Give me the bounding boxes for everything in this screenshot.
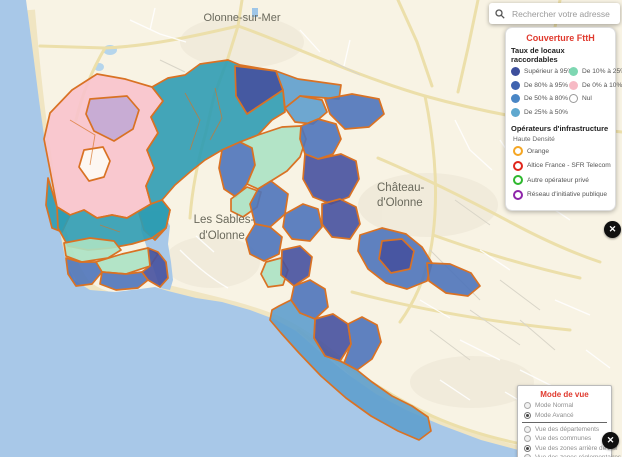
- label-sables-line1: Les Sables-: [194, 214, 255, 226]
- coverage-legend-label: De 0% à 10%: [582, 82, 622, 89]
- operator-legend-label: Réseau d'initiative publique: [527, 191, 607, 198]
- label-chateau-line1: Château-: [377, 182, 424, 194]
- coverage-legend-item: Supérieur à 95%: [511, 67, 569, 76]
- operator-ring-icon: [513, 161, 523, 171]
- radio-button-icon[interactable]: [524, 402, 531, 409]
- coverage-legend-col2: De 10% à 25% De 0% à 10% Nul: [569, 67, 622, 121]
- radio-button-icon[interactable]: [524, 445, 531, 452]
- coverage-legend: Supérieur à 95% De 80% à 95% De 50% à 80…: [511, 67, 610, 121]
- view-mode-panel: Mode de vue Mode Normal Mode Avancé Vue …: [517, 385, 612, 457]
- view-mode-options: Mode Normal Mode Avancé Vue des départem…: [522, 402, 607, 457]
- view-mode-option-label: Vue des départements: [535, 426, 599, 433]
- operator-legend-label: Altice France - SFR Telecom: [527, 162, 611, 169]
- label-chateau-line2: d'Olonne: [377, 197, 423, 209]
- operator-ring-icon: [513, 190, 523, 200]
- coverage-legend-label: De 80% à 95%: [524, 82, 568, 89]
- operators-section-title: Opérateurs d'infrastructure: [511, 124, 610, 133]
- operator-legend-item: Altice France - SFR Telecom: [513, 161, 610, 171]
- coverage-color-dot: [511, 81, 520, 90]
- operator-legend-item: Réseau d'initiative publique: [513, 190, 610, 200]
- legend-panel: Couverture FttH Taux de locaux raccordab…: [505, 27, 616, 211]
- coverage-color-dot: [569, 67, 578, 76]
- radio-button-icon[interactable]: [524, 435, 531, 442]
- radio-button-icon[interactable]: [524, 412, 531, 419]
- close-button-view-mode[interactable]: ✕: [602, 432, 619, 449]
- operators-subtitle: Haute Densité: [513, 136, 610, 143]
- view-mode-title: Mode de vue: [522, 390, 607, 399]
- coverage-section-title: Taux de locaux raccordables: [511, 46, 610, 64]
- close-button[interactable]: ✕: [604, 221, 621, 238]
- label-sables-line2: d'Olonne: [199, 230, 245, 242]
- view-mode-option-label: Vue des communes: [535, 435, 591, 442]
- operator-legend-item: Orange: [513, 146, 610, 156]
- coverage-legend-label: De 50% à 80%: [524, 95, 568, 102]
- coverage-legend-item: De 50% à 80%: [511, 94, 569, 103]
- operator-ring-icon: [513, 146, 523, 156]
- coverage-legend-item: De 0% à 10%: [569, 81, 622, 90]
- search-icon: [495, 9, 505, 19]
- view-mode-option-label: Mode Normal: [535, 402, 573, 409]
- view-mode-option-label: Mode Avancé: [535, 412, 574, 419]
- coverage-legend-label: De 25% à 50%: [524, 109, 568, 116]
- coverage-legend-label: Supérieur à 95%: [524, 68, 573, 75]
- coverage-legend-item: De 25% à 50%: [511, 108, 569, 117]
- coverage-legend-label: De 10% à 25%: [582, 68, 622, 75]
- search-input[interactable]: [510, 8, 614, 20]
- coverage-color-dot: [511, 108, 520, 117]
- label-olonne-sur-mer: Olonne-sur-Mer: [203, 12, 280, 24]
- operator-ring-icon: [513, 175, 523, 185]
- coverage-color-dot: [569, 94, 578, 103]
- legend-title: Couverture FttH: [511, 33, 610, 43]
- coverage-legend-item: De 80% à 95%: [511, 81, 569, 90]
- search-bar: [489, 3, 620, 24]
- operator-legend-label: Orange: [527, 148, 549, 155]
- view-mode-option[interactable]: Vue des départements: [522, 426, 607, 433]
- operator-legend-label: Autre opérateur privé: [527, 177, 589, 184]
- coverage-legend-item: Nul: [569, 94, 622, 103]
- ftth-coverage-map-app: Olonne-sur-Mer Château- d'Olonne Les Sab…: [0, 0, 622, 457]
- view-mode-option[interactable]: Mode Avancé: [522, 412, 607, 423]
- coverage-color-dot: [511, 67, 520, 76]
- coverage-legend-col1: Supérieur à 95% De 80% à 95% De 50% à 80…: [511, 67, 569, 121]
- coverage-color-dot: [511, 94, 520, 103]
- view-mode-option[interactable]: Vue des communes: [522, 435, 607, 442]
- operators-legend: Orange Altice France - SFR Telecom Autre…: [511, 146, 610, 200]
- radio-button-icon[interactable]: [524, 426, 531, 433]
- operator-legend-item: Autre opérateur privé: [513, 175, 610, 185]
- coverage-legend-item: De 10% à 25%: [569, 67, 622, 76]
- view-mode-option[interactable]: Vue des zones arrière de PM: [522, 445, 607, 452]
- view-mode-option[interactable]: Mode Normal: [522, 402, 607, 409]
- coverage-legend-label: Nul: [582, 95, 592, 102]
- coverage-color-dot: [569, 81, 578, 90]
